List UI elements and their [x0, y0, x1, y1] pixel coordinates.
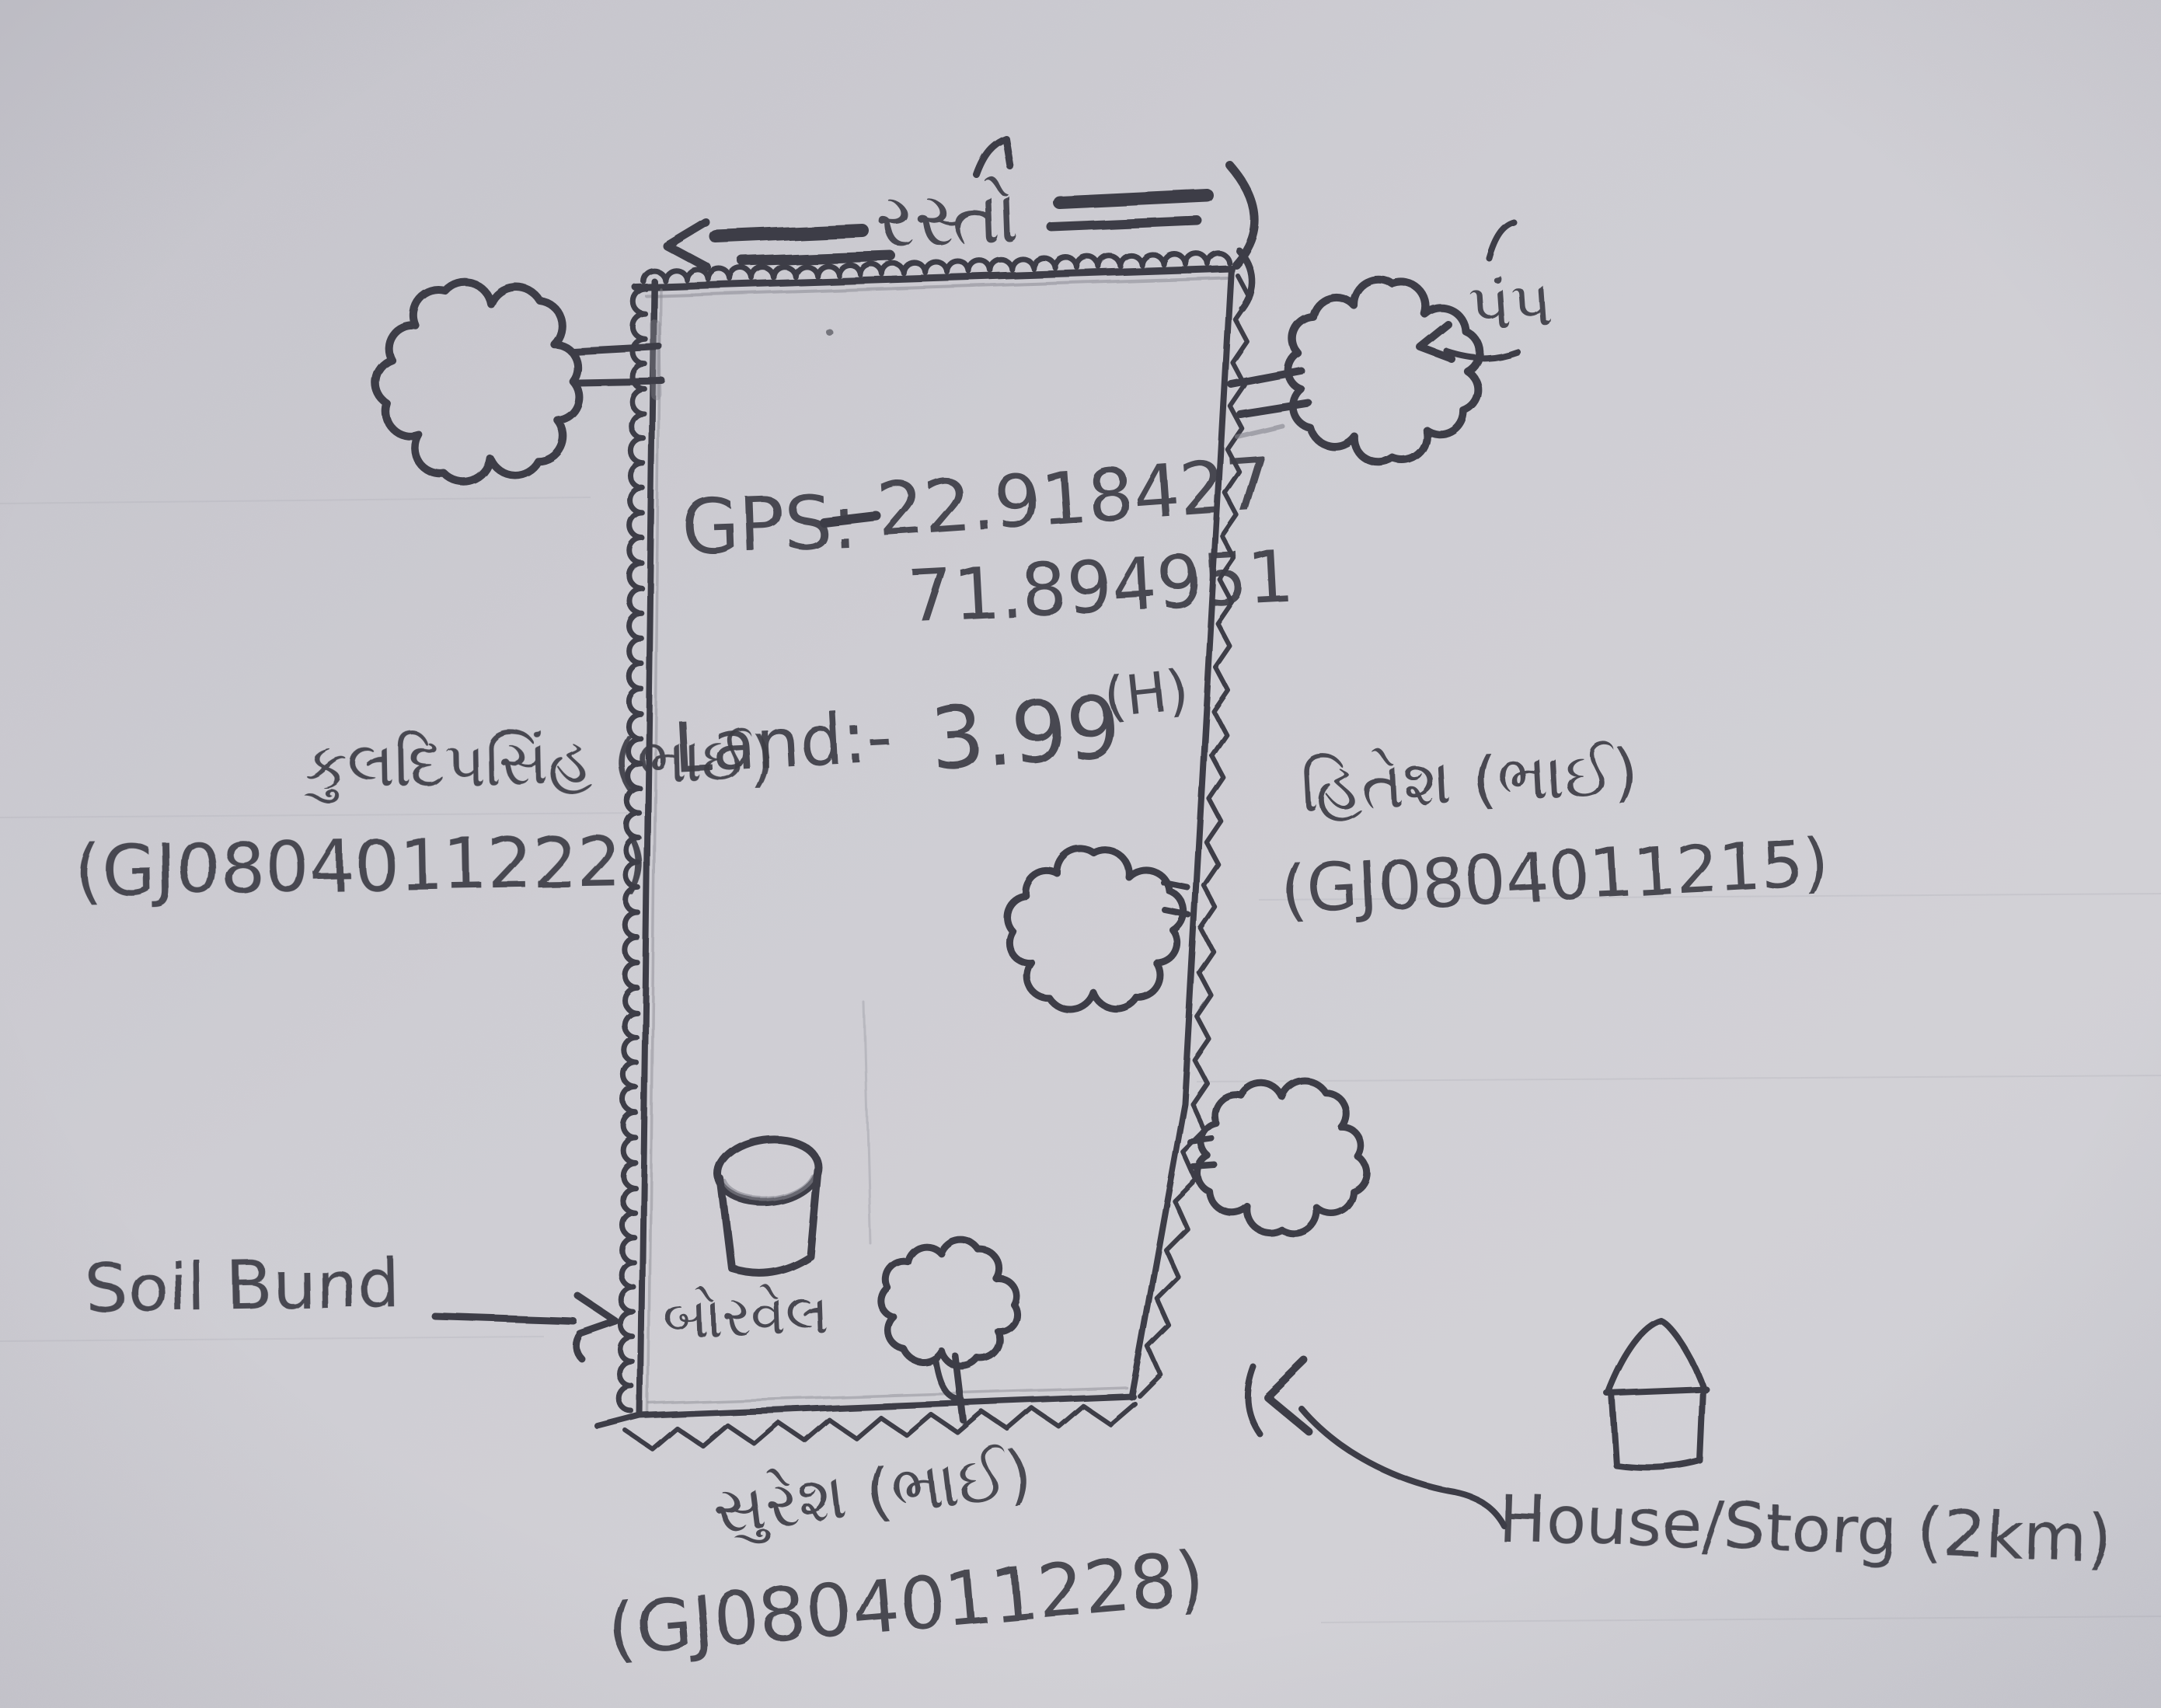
sketch-page: રસ્તો GPS: 22.918427 71.894951 Land:- 3.…: [0, 0, 2161, 1708]
road-double-bar: [743, 256, 891, 261]
neighbor-left-name: કુલદિપસિંહ (ભાઈ): [301, 722, 775, 803]
road-label: રસ્તો: [874, 173, 1021, 265]
tree-branch: [573, 347, 659, 351]
sketch-canvas: રસ્તો GPS: 22.918427 71.894951 Land:- 3.…: [0, 0, 2161, 1708]
road-double-bar: [1060, 196, 1208, 203]
tree-branch: [578, 381, 662, 382]
road-double-bar: [716, 231, 863, 237]
road-double-bar: [1052, 221, 1198, 228]
tree-branch: [1190, 1139, 1212, 1142]
gps-dash: [824, 516, 877, 522]
pencil-dot: [827, 329, 834, 336]
pump-label: પંપ: [1466, 266, 1554, 345]
soil-bund-label: Soil Bund: [85, 1245, 401, 1328]
tree-branch: [1194, 1166, 1215, 1167]
house-icon-divider: [1607, 1389, 1706, 1393]
land-area-unit: (H): [1101, 657, 1190, 730]
land-area-value: 3.99: [927, 677, 1124, 790]
soil-bund-arrow-line: [435, 1316, 573, 1321]
borewell-label: બોરવેલ: [662, 1281, 829, 1351]
neighbor-left-id: (GJ0804011222): [74, 821, 650, 912]
